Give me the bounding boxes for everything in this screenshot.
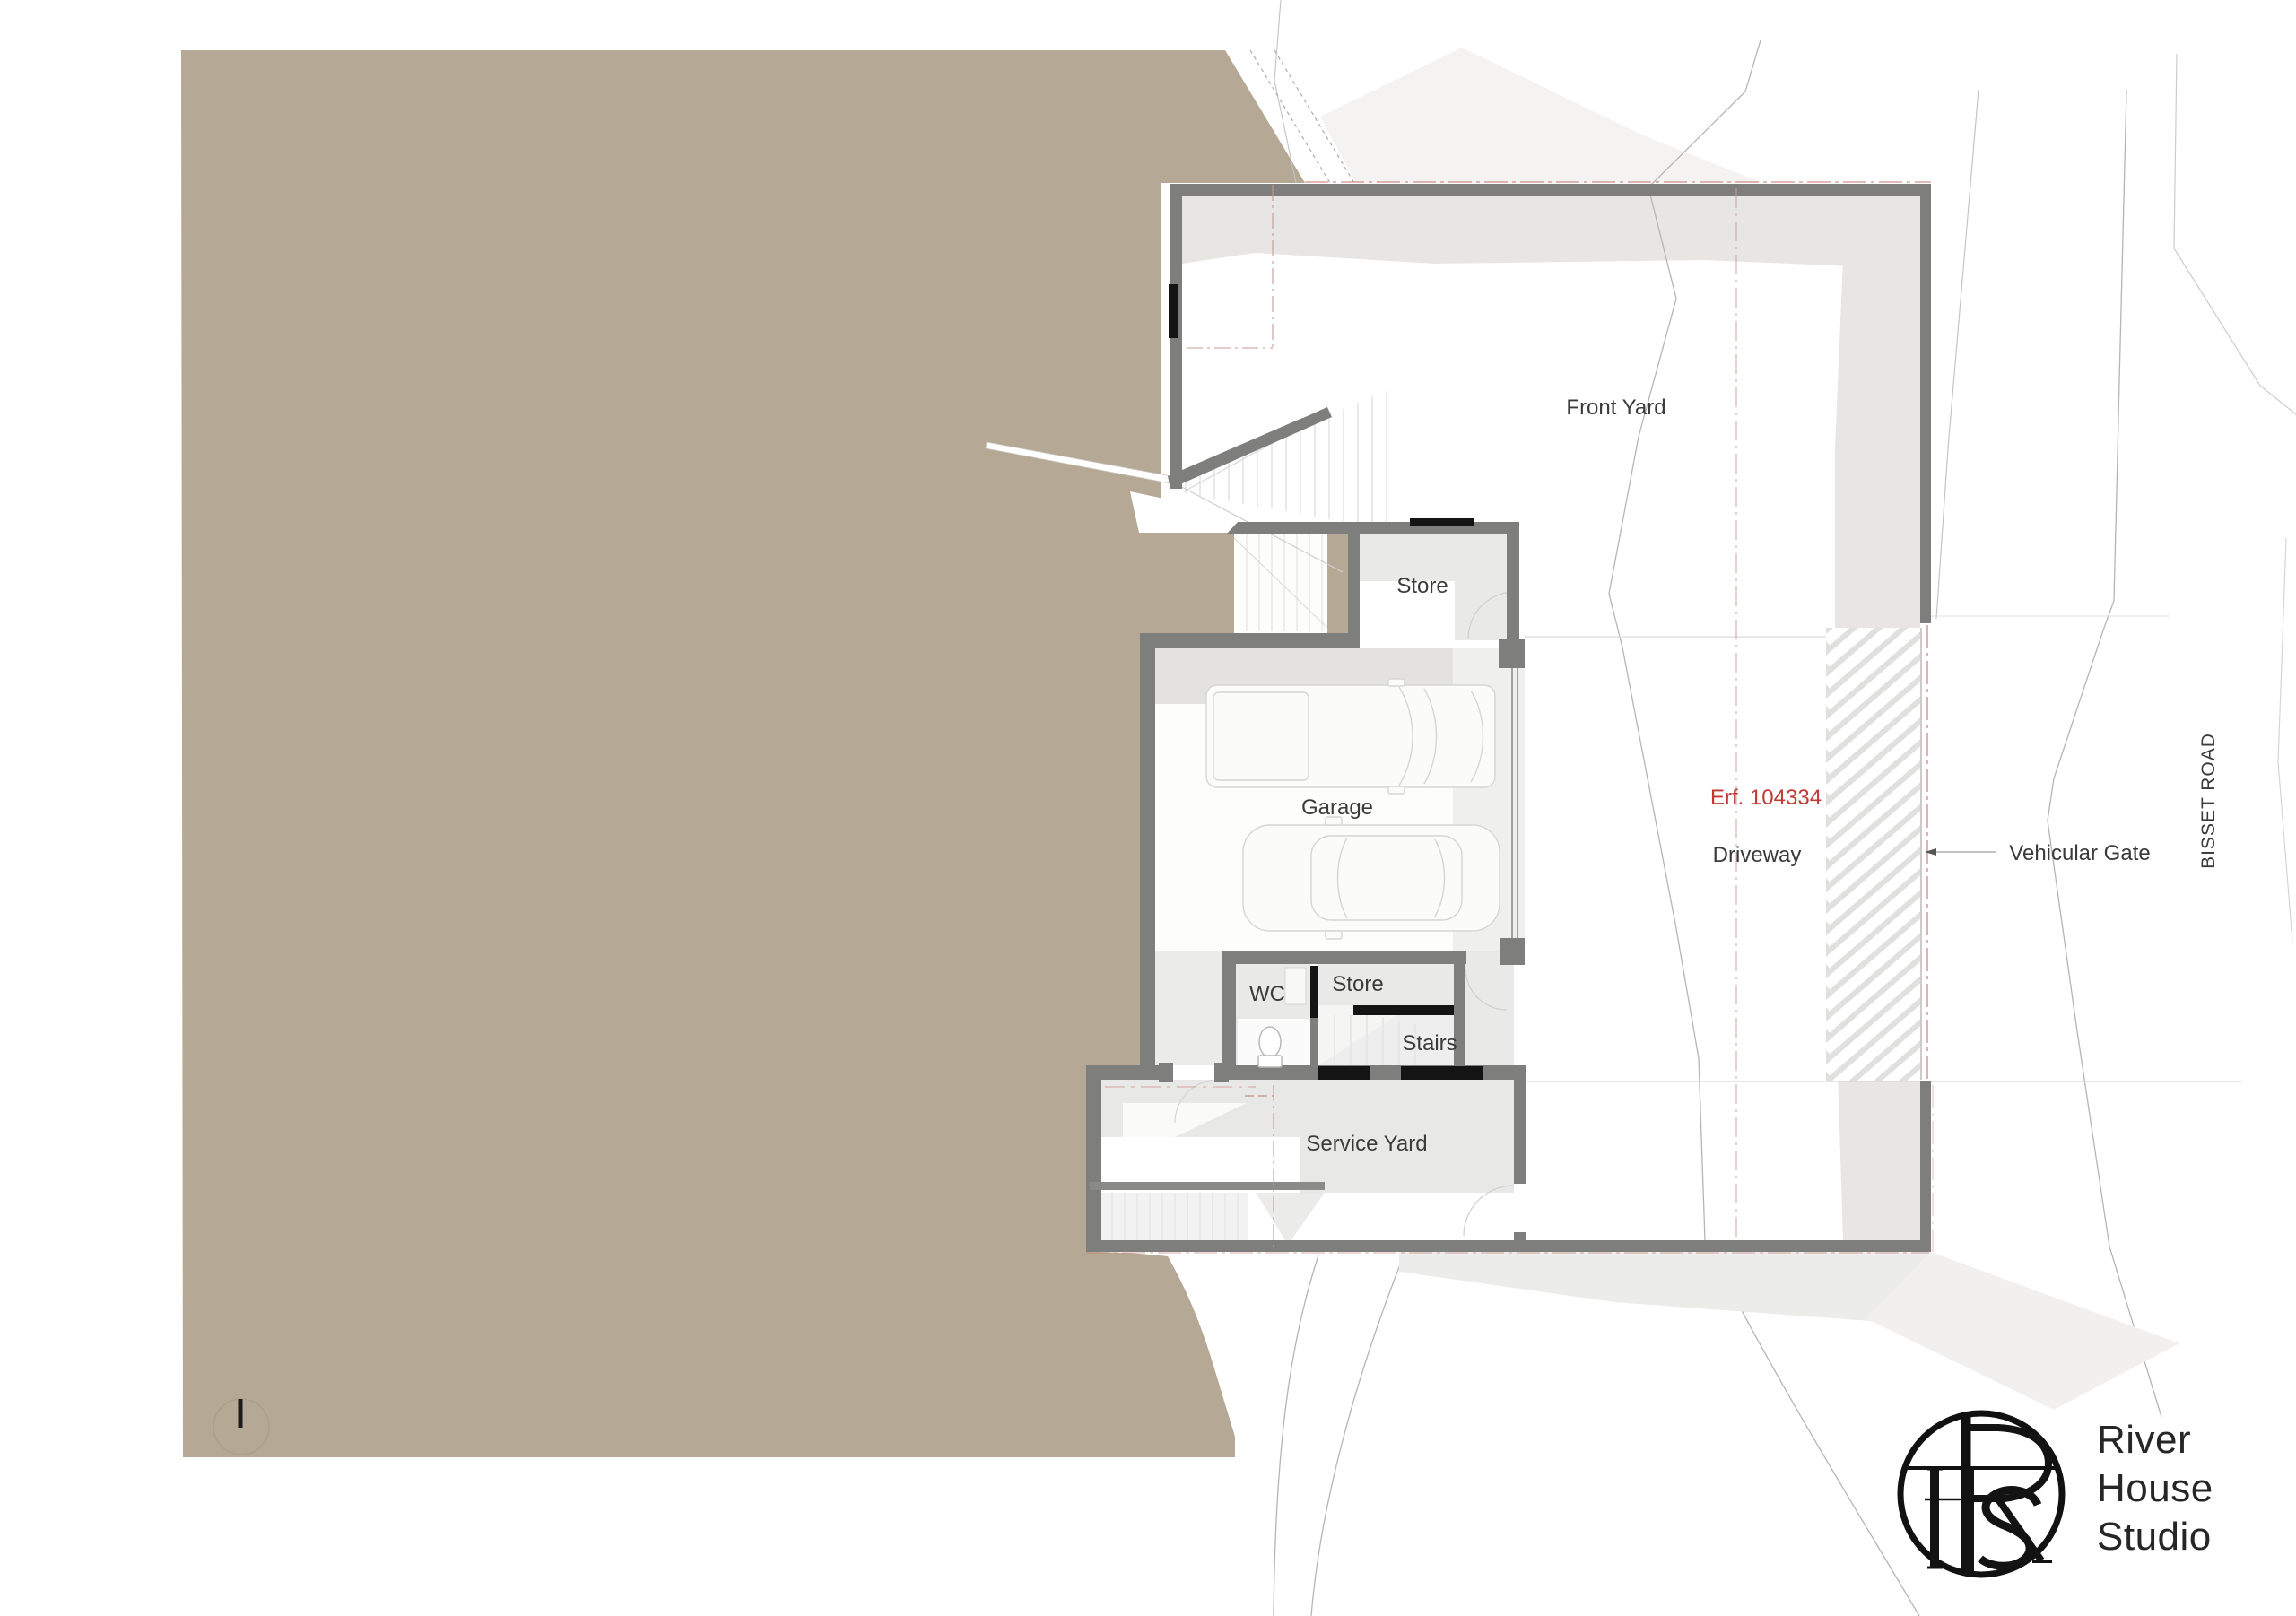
- svg-text:WC: WC: [1249, 982, 1285, 1006]
- svg-text:River: River: [2097, 1418, 2191, 1462]
- svg-text:Service Yard: Service Yard: [1306, 1132, 1427, 1156]
- svg-text:Vehicular Gate: Vehicular Gate: [2009, 841, 2150, 865]
- svg-text:Erf. 104334: Erf. 104334: [1710, 786, 1822, 810]
- svg-text:Front Yard: Front Yard: [1566, 395, 1665, 420]
- svg-text:House: House: [2097, 1466, 2213, 1510]
- svg-text:Driveway: Driveway: [1713, 843, 1802, 867]
- svg-text:Garage: Garage: [1301, 795, 1373, 820]
- svg-text:Studio: Studio: [2097, 1515, 2212, 1559]
- svg-text:BISSET ROAD: BISSET ROAD: [2198, 733, 2219, 869]
- svg-text:Store: Store: [1332, 972, 1383, 996]
- svg-text:Stairs: Stairs: [1402, 1031, 1457, 1056]
- svg-text:Store: Store: [1396, 574, 1448, 598]
